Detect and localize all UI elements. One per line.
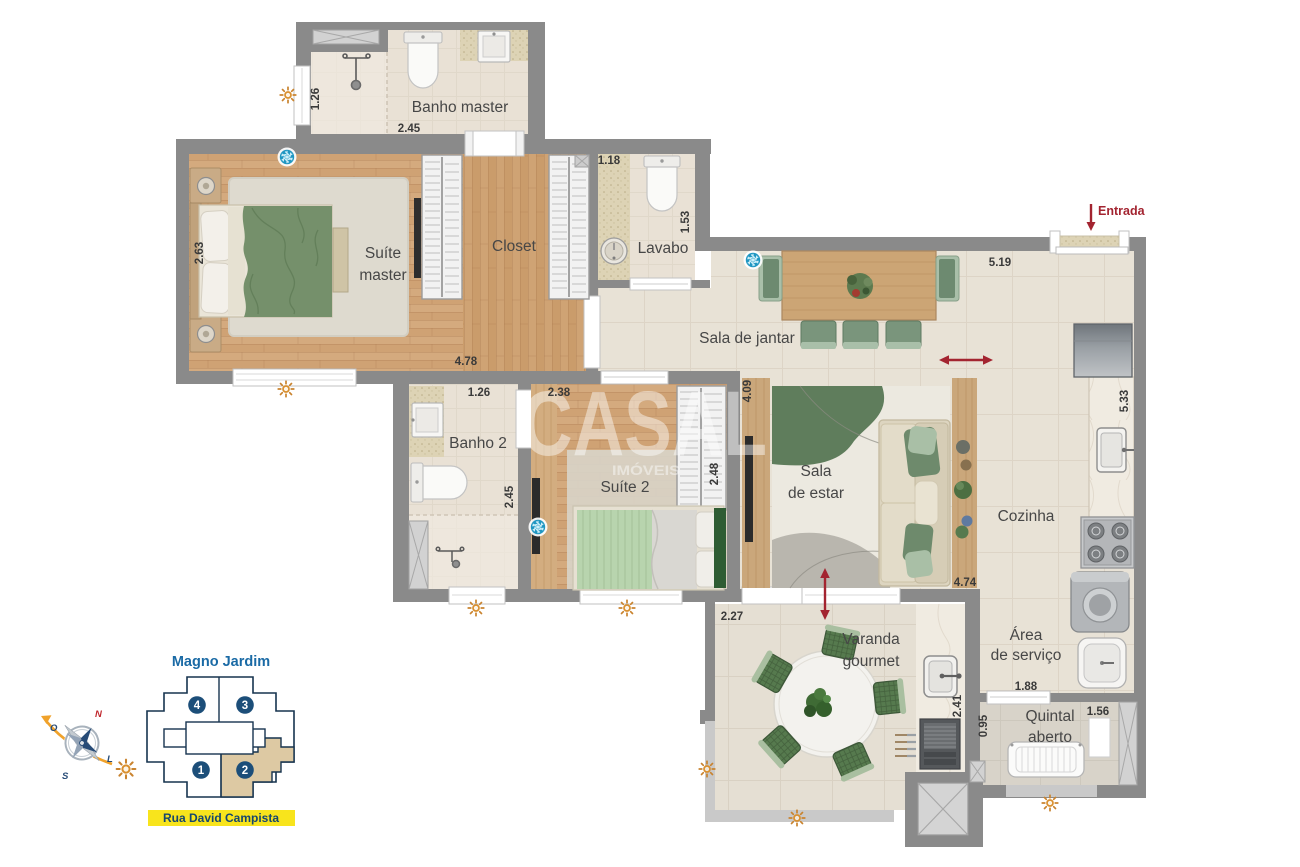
svg-text:2: 2: [242, 765, 248, 777]
svg-text:aberto: aberto: [1028, 729, 1072, 746]
svg-text:1.56: 1.56: [1087, 706, 1109, 718]
svg-text:4.78: 4.78: [455, 356, 478, 368]
svg-text:Suíte: Suíte: [365, 245, 401, 262]
svg-text:Sala: Sala: [800, 463, 831, 480]
svg-text:4.74: 4.74: [954, 577, 977, 589]
svg-text:Cozinha: Cozinha: [998, 508, 1055, 525]
svg-text:Área: Área: [1010, 627, 1043, 644]
svg-text:Closet: Closet: [492, 238, 537, 255]
svg-text:0.95: 0.95: [978, 714, 990, 737]
svg-text:4: 4: [194, 700, 201, 712]
svg-text:de estar: de estar: [788, 485, 844, 502]
svg-text:2.41: 2.41: [952, 694, 964, 717]
svg-text:2.45: 2.45: [398, 123, 421, 135]
svg-text:L: L: [107, 754, 113, 765]
svg-text:1.18: 1.18: [598, 155, 621, 167]
svg-text:Sala de jantar: Sala de jantar: [699, 330, 795, 347]
svg-text:master: master: [359, 267, 406, 284]
svg-text:1.26: 1.26: [310, 88, 322, 110]
svg-text:3: 3: [242, 700, 248, 712]
svg-text:Rua David Campista: Rua David Campista: [163, 811, 279, 825]
svg-text:Quintal: Quintal: [1025, 708, 1074, 725]
svg-text:gourmet: gourmet: [843, 653, 901, 670]
svg-text:Entrada: Entrada: [1098, 204, 1146, 218]
svg-text:N: N: [95, 709, 103, 720]
svg-text:2.38: 2.38: [548, 387, 571, 399]
svg-text:IMÓVEIS: IMÓVEIS: [612, 461, 680, 478]
svg-text:Suíte 2: Suíte 2: [600, 479, 649, 496]
svg-text:2.27: 2.27: [721, 611, 743, 623]
svg-text:2.45: 2.45: [504, 485, 516, 508]
svg-text:1: 1: [198, 765, 205, 777]
svg-text:1.53: 1.53: [680, 211, 692, 233]
svg-text:Banho master: Banho master: [412, 99, 509, 116]
svg-text:O: O: [50, 723, 58, 734]
svg-text:Magno Jardim: Magno Jardim: [172, 654, 270, 670]
svg-text:de serviço: de serviço: [991, 647, 1062, 664]
svg-text:S: S: [62, 771, 69, 782]
svg-text:1.26: 1.26: [468, 387, 490, 399]
svg-text:Varanda: Varanda: [842, 631, 900, 648]
svg-text:Lavabo: Lavabo: [638, 240, 689, 257]
svg-text:2.48: 2.48: [709, 462, 721, 485]
svg-text:2.63: 2.63: [194, 242, 206, 264]
svg-text:5.19: 5.19: [989, 257, 1011, 269]
svg-text:Banho 2: Banho 2: [449, 435, 507, 452]
svg-text:5.33: 5.33: [1119, 390, 1131, 412]
svg-text:4.09: 4.09: [742, 380, 754, 402]
svg-text:1.88: 1.88: [1015, 681, 1038, 693]
